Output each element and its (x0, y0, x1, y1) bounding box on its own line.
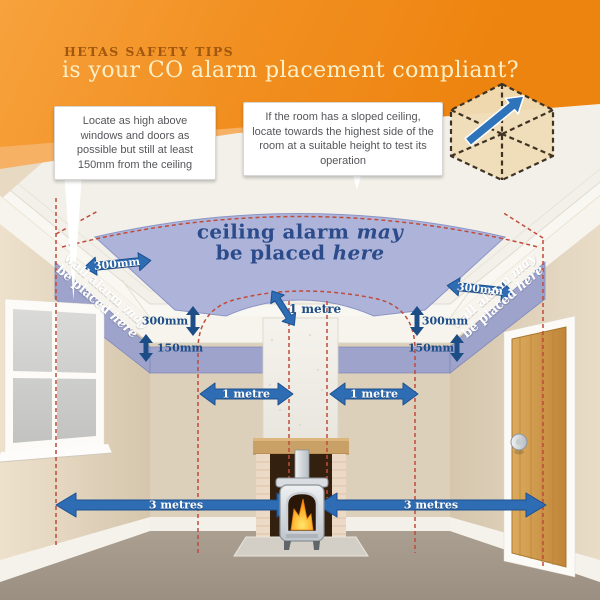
left-300mm-label: 300mm (142, 315, 188, 328)
infographic-co-alarm-placement: HETAS SAFETY TIPS is your CO alarm place… (0, 0, 600, 600)
ceiling-zone-label: ceiling alarm may be placed here (197, 222, 403, 265)
appliance-left-label: 1 metre (222, 388, 270, 401)
right-300mm-label: 300mm (422, 315, 468, 328)
flue-clearance-label: 1 metre (289, 302, 341, 316)
floor-left-label: 3 metres (149, 499, 203, 512)
left-150mm-label: 150mm (157, 342, 203, 355)
floor-right-label: 3 metres (404, 499, 458, 512)
appliance-right-label: 1 metre (350, 388, 398, 401)
callout-left: Locate as high above windows and doors a… (54, 106, 216, 180)
right-150mm-label: 150mm (408, 342, 454, 355)
cube-outline (451, 84, 553, 180)
callout-right: If the room has a sloped ceiling, locate… (243, 102, 443, 176)
